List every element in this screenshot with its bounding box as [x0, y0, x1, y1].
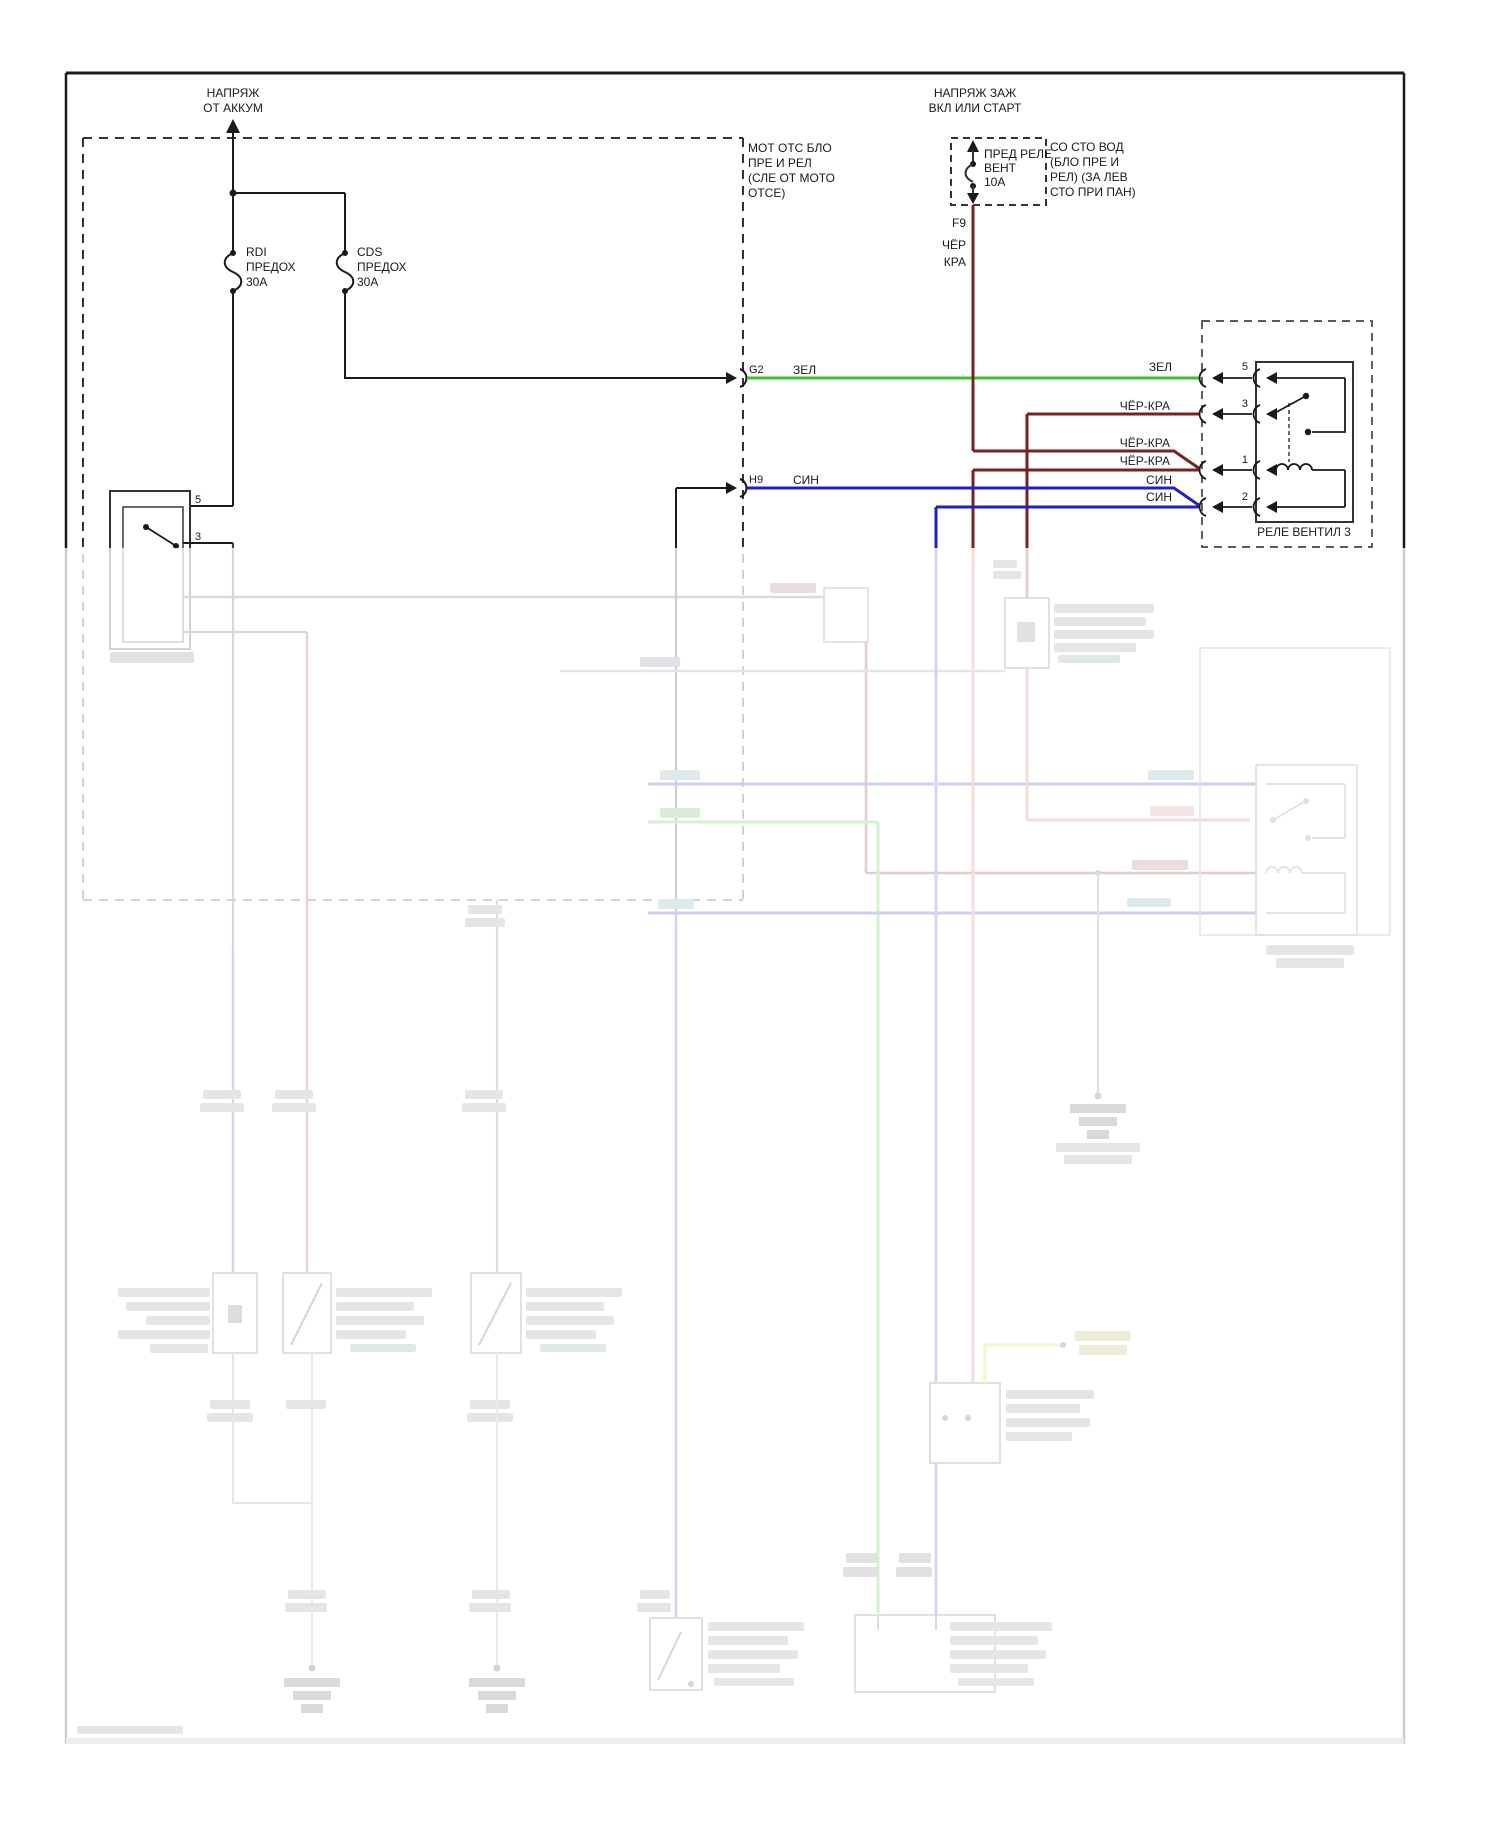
g2-connector-icon	[726, 372, 737, 384]
relay3-pin5-number: 5	[1232, 361, 1248, 374]
wire-color-cher-kra-pin1-b: ЧЁР-КРА	[1090, 454, 1170, 469]
engine-junction-block-outline	[83, 138, 743, 900]
relay3-pin1-number: 1	[1232, 454, 1248, 467]
wire-color-sin-h9: СИН	[793, 473, 819, 488]
wire-color-sin-pin2-a: СИН	[1112, 473, 1172, 488]
relay1-box	[110, 491, 233, 663]
wiring-diagram-page: НАПРЯЖ ОТ АККУМ НАПРЯЖ ЗАЖ ВКЛ ИЛИ СТАРТ…	[0, 0, 1500, 1828]
relay3-name-label: РЕЛЕ ВЕНТИЛ 3	[1229, 525, 1379, 540]
faded-region	[77, 543, 1390, 1734]
wire-color-sin-pin2-b: СИН	[1112, 490, 1172, 505]
relay3-pin2-number: 2	[1232, 491, 1248, 504]
wire-color-cher: ЧЁР	[920, 238, 966, 253]
relay1-pin5-number: 5	[195, 494, 201, 507]
h9-connector-icon	[726, 482, 737, 494]
wire-color-kra: КРА	[920, 255, 966, 270]
battery-feed-wires	[190, 119, 746, 905]
wire-color-zel-left: ЗЕЛ	[793, 363, 816, 378]
wire-color-cher-kra-pin3: ЧЁР-КРА	[1090, 399, 1170, 414]
relay3-pin-connectors	[1254, 369, 1277, 516]
relay1-label-blur	[110, 652, 194, 663]
page-border	[66, 73, 1404, 1744]
wire-color-cher-kra-pin1-a: ЧЁР-КРА	[1090, 436, 1170, 451]
rdi-fuse-label: RDI ПРЕДОХ 30A	[246, 245, 296, 290]
wiring-diagram-canvas	[0, 0, 1500, 1828]
cds-fuse-label: CDS ПРЕДОХ 30A	[357, 245, 407, 290]
connector-h9-label: H9	[749, 474, 763, 487]
relay3-internals	[1270, 378, 1345, 507]
relay3-coil-icon	[1276, 464, 1312, 470]
relay1-pin3-number: 3	[195, 531, 201, 544]
driver-junction-block-label: СО СТО ВОД (БЛО ПРЕ И РЕЛ) (ЗА ЛЕВ СТО П…	[1050, 140, 1136, 200]
connector-g2-label: G2	[749, 364, 764, 377]
relay2-box	[1200, 648, 1390, 935]
up-arrow-icon	[226, 119, 240, 133]
battery-voltage-label: НАПРЯЖ ОТ АККУМ	[163, 86, 303, 116]
relay3-pin3-number: 3	[1232, 398, 1248, 411]
f9-terminal-label: F9	[934, 216, 966, 231]
relay3-box	[1200, 321, 1372, 547]
ignition-voltage-label: НАПРЯЖ ЗАЖ ВКЛ ИЛИ СТАРТ	[905, 86, 1045, 116]
wire-color-zel-right: ЗЕЛ	[1112, 360, 1172, 375]
fan-relay-fuse-label: ПРЕД РЕЛЕ ВЕНТ 10A	[984, 147, 1052, 189]
engine-junction-block-label: МОТ ОТС БЛО ПРЕ И РЕЛ (СЛЕ ОТ МОТО ОТСЕ)	[748, 141, 835, 201]
